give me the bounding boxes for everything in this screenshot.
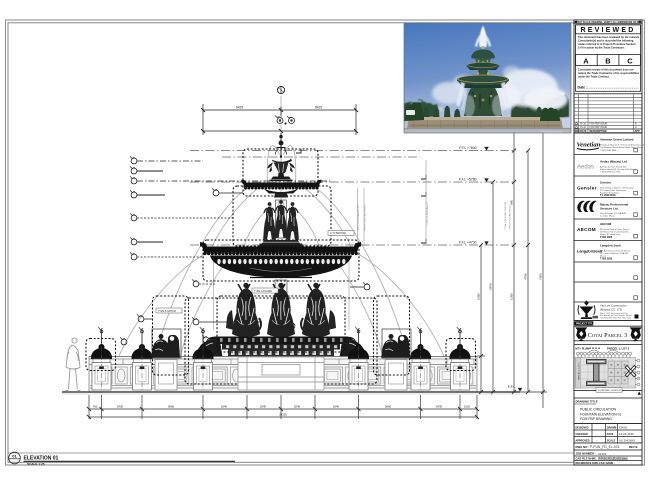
svg-text:Consultant review of this docu: Consultant review of this document does … <box>578 68 634 72</box>
svg-text:Aedas (Macau) Ltd.: Aedas (Macau) Ltd. <box>600 160 628 164</box>
svg-text:DRAWING TITLE: DRAWING TITLE <box>576 400 598 404</box>
svg-text:1020: 1020 <box>464 405 471 409</box>
svg-text:DO NOT SCALE DRAWING. VERIFY A: DO NOT SCALE DRAWING. VERIFY ALL DIMENSI… <box>573 21 643 24</box>
svg-text:Edificio Great Will, 14 andar: Edificio Great Will, 14 andar A-B, Macau <box>600 168 636 171</box>
svg-text:FIT Center of Macau, 251A-301: FIT Center of Macau, 251A-301 <box>600 252 629 255</box>
svg-text:T (853) 2833 1er 1333: T (853) 2833 1er 1333 <box>600 172 621 174</box>
svg-text:A: A <box>583 56 589 65</box>
svg-text:AECOM: AECOM <box>577 227 596 233</box>
svg-text:P-FUN_FD_EL-001: P-FUN_FD_EL-001 <box>590 445 620 449</box>
svg-text:SCALE 1:25: SCALE 1:25 <box>27 462 45 466</box>
svg-text:TYPE F FOUNTAIN SPOUT: TYPE F FOUNTAIN SPOUT <box>357 204 360 232</box>
svg-text:01: 01 <box>12 454 17 459</box>
svg-text:relieve the Trade Contractor o: relieve the Trade Contractor of its resp… <box>578 71 640 75</box>
svg-text:under the Trade Contract.: under the Trade Contract. <box>578 74 610 78</box>
svg-text:DRAWN: DRAWN <box>607 426 617 429</box>
svg-text:Gensler: Gensler <box>577 186 597 191</box>
svg-text:DATE: DATE <box>607 433 614 436</box>
svg-text:TOTAL FOUNTAIN DISPLAY: TOTAL FOUNTAIN DISPLAY <box>504 201 507 230</box>
svg-text:TYPE D FOUNTAIN JET: TYPE D FOUNTAIN JET <box>426 200 429 225</box>
svg-text:Aedas: Aedas <box>577 165 594 171</box>
svg-text:(Macau) CO. LTD.: (Macau) CO. LTD. <box>600 308 623 312</box>
svg-text:5.4 for action by the Trade Co: 5.4 for action by the Trade Contractor. <box>578 45 625 49</box>
svg-text:Gensler: Gensler <box>600 181 612 185</box>
svg-text:REV B: REV B <box>629 445 638 449</box>
svg-text:8/F Grand Central Plaza, Tower: 8/F Grand Central Plaza, Tower 2, <box>600 228 631 231</box>
svg-text:PUBLIC CIRCULATION: PUBLIC CIRCULATION <box>580 408 616 412</box>
svg-text:PARCEL 1, LOT 1: PARCEL 1, LOT 1 <box>578 362 581 380</box>
svg-text:FOUNTAIN ELEVATION 01: FOUNTAIN ELEVATION 01 <box>580 412 621 416</box>
svg-text:SCALE: SCALE <box>607 439 616 442</box>
svg-text:28F Avenida Comercial de Macau: 28F Avenida Comercial de Macau, <box>600 249 631 252</box>
svg-text:P-FUN_FD_EL-001.dwg: P-FUN_FD_EL-001.dwg <box>599 456 628 460</box>
svg-text:DESIGNED: DESIGNED <box>576 426 589 429</box>
svg-text:2870: 2870 <box>489 283 493 290</box>
svg-text:This document has been reviewe: This document has been reviewed by the r… <box>578 35 639 39</box>
svg-text:C: C <box>627 56 633 65</box>
svg-text:Venetian: Venetian <box>577 142 601 149</box>
svg-text:3660: 3660 <box>385 405 392 409</box>
svg-text:Consultants(s) and is accorded: Consultants(s) and is accorded the follo… <box>578 39 634 43</box>
svg-text:F.F.L +7600: F.F.L +7600 <box>459 146 477 150</box>
svg-text:7600: 7600 <box>539 273 543 280</box>
svg-text:6425: 6425 <box>236 106 243 110</box>
svg-text:25 Canton Road, Tsimshatsui: 25 Canton Road, Tsimshatsui <box>600 189 627 192</box>
svg-text:FCM FBP DRAWING: FCM FBP DRAWING <box>580 417 612 421</box>
svg-text:Suite 1508-10, Tower 2, The Ga: Suite 1508-10, Tower 2, The Gateway <box>600 186 634 189</box>
svg-text:6425: 6425 <box>315 106 322 110</box>
svg-text:T 1 2528 0618: T 1 2528 0618 <box>600 194 616 197</box>
svg-text:05-16: 05-16 <box>580 123 587 125</box>
svg-text:12-04-2016: 12-04-2016 <box>619 432 634 436</box>
svg-text:Rua de Xangai 175, Edf ACM: Rua de Xangai 175, Edf ACM <box>600 212 626 215</box>
svg-text:2040: 2040 <box>260 405 267 409</box>
svg-text:Date :: Date : <box>578 86 588 90</box>
svg-text:2640: 2640 <box>221 405 228 409</box>
svg-text:-: - <box>596 432 597 436</box>
svg-text:APPROVED: APPROVED <box>576 439 590 442</box>
svg-text:Services Ltd.: Services Ltd. <box>600 207 619 211</box>
svg-text:F.F.L.: F.F.L. <box>508 385 516 389</box>
svg-text:TYPE B SPHINX: TYPE B SPHINX <box>158 310 176 313</box>
svg-text:REVIEWED: REVIEWED <box>581 27 636 34</box>
svg-text:Estrada da Baia de N. Senhora: Estrada da Baia de N. Senhora da Esperan… <box>600 144 644 147</box>
svg-text:JOB NUMBER :: JOB NUMBER : <box>576 452 597 456</box>
svg-text:Tel: (853) 2837 5670 Fax: 283: Tel: (853) 2837 5670 Fax: 2837 5672 <box>600 318 631 320</box>
svg-text:960: 960 <box>510 200 514 205</box>
svg-text:ELEVATION 01: ELEVATION 01 <box>24 456 59 462</box>
svg-text:COTAI PARCEL 3: COTAI PARCEL 3 <box>588 332 627 339</box>
svg-text:FOUNTAIN LOCATION: FOUNTAIN LOCATION <box>598 389 621 392</box>
svg-text:T 852 2828: T 852 2828 <box>600 236 613 239</box>
svg-text:Avenida da Praia Grande 665: Avenida da Praia Grande 665 <box>600 165 627 168</box>
svg-text:T 853 2833: T 853 2833 <box>600 257 613 260</box>
svg-text:FCM FBP ISSUE: FCM FBP ISSUE <box>590 127 608 129</box>
svg-text:2040: 2040 <box>294 405 301 409</box>
svg-text:Venetian Orient Limited: Venetian Orient Limited <box>600 138 634 142</box>
svg-text:1050: 1050 <box>510 293 514 300</box>
svg-text:12 andar, Macau: 12 andar, Macau <box>600 215 615 217</box>
svg-text:2640: 2640 <box>333 405 340 409</box>
svg-text:3660: 3660 <box>168 405 175 409</box>
svg-text:F.F.L +4730: F.F.L +4730 <box>459 241 477 245</box>
svg-text:04-16: 04-16 <box>580 127 587 129</box>
svg-text:AS SHOWN: AS SHOWN <box>619 439 635 443</box>
svg-text:2430: 2430 <box>117 405 124 409</box>
svg-text:CHAD: CHAD <box>619 426 627 430</box>
svg-text:1770 BRONZE: 1770 BRONZE <box>330 232 346 235</box>
svg-text:DWG NO :: DWG NO : <box>576 445 590 449</box>
svg-text:F.F.L +5780: F.F.L +5780 <box>459 178 477 182</box>
svg-text:T (853) 2882 8888: T (853) 2882 8888 <box>600 150 617 152</box>
svg-text:TYPE A FIGURE: TYPE A FIGURE <box>254 290 272 293</box>
svg-text:-: - <box>596 439 597 443</box>
svg-text:Langdon Seah: Langdon Seah <box>600 244 621 248</box>
svg-text:AECOM: AECOM <box>600 222 612 226</box>
svg-text:PARCEL 1, LOT 2: PARCEL 1, LOT 2 <box>607 346 630 350</box>
svg-text:TYPE FOUNTAIN SPOUT: TYPE FOUNTAIN SPOUT <box>509 204 512 230</box>
svg-text:FCM FBP ISSUE: FCM FBP ISSUE <box>590 123 608 125</box>
svg-text:CAD FILE NAME :: CAD FILE NAME : <box>576 456 598 460</box>
svg-text:CHECKED: CHECKED <box>576 433 589 436</box>
svg-text:LangdonSeah: LangdonSeah <box>577 250 603 254</box>
svg-text:4750: 4750 <box>524 273 528 280</box>
svg-text:138 Shatin Rural Committee Rd,: 138 Shatin Rural Committee Rd, <box>600 230 629 233</box>
svg-text:status referred to in Projec: status referred to in Project Procedure … <box>578 42 636 46</box>
svg-text:REFERENCE DWG FILE NAME :: REFERENCE DWG FILE NAME : <box>576 461 615 465</box>
svg-text:2430: 2430 <box>436 405 443 409</box>
svg-text:PROJECT TITLE: PROJECT TITLE <box>576 323 595 326</box>
svg-text:31303: 31303 <box>598 452 607 456</box>
svg-text:TYPE G FOUNTAIN SPOUT: TYPE G FOUNTAIN SPOUT <box>364 204 367 232</box>
svg-text:760: 760 <box>93 405 98 409</box>
svg-text:B: B <box>605 56 611 65</box>
svg-text:24135: 24135 <box>279 413 287 417</box>
svg-text:1050: 1050 <box>477 293 481 300</box>
